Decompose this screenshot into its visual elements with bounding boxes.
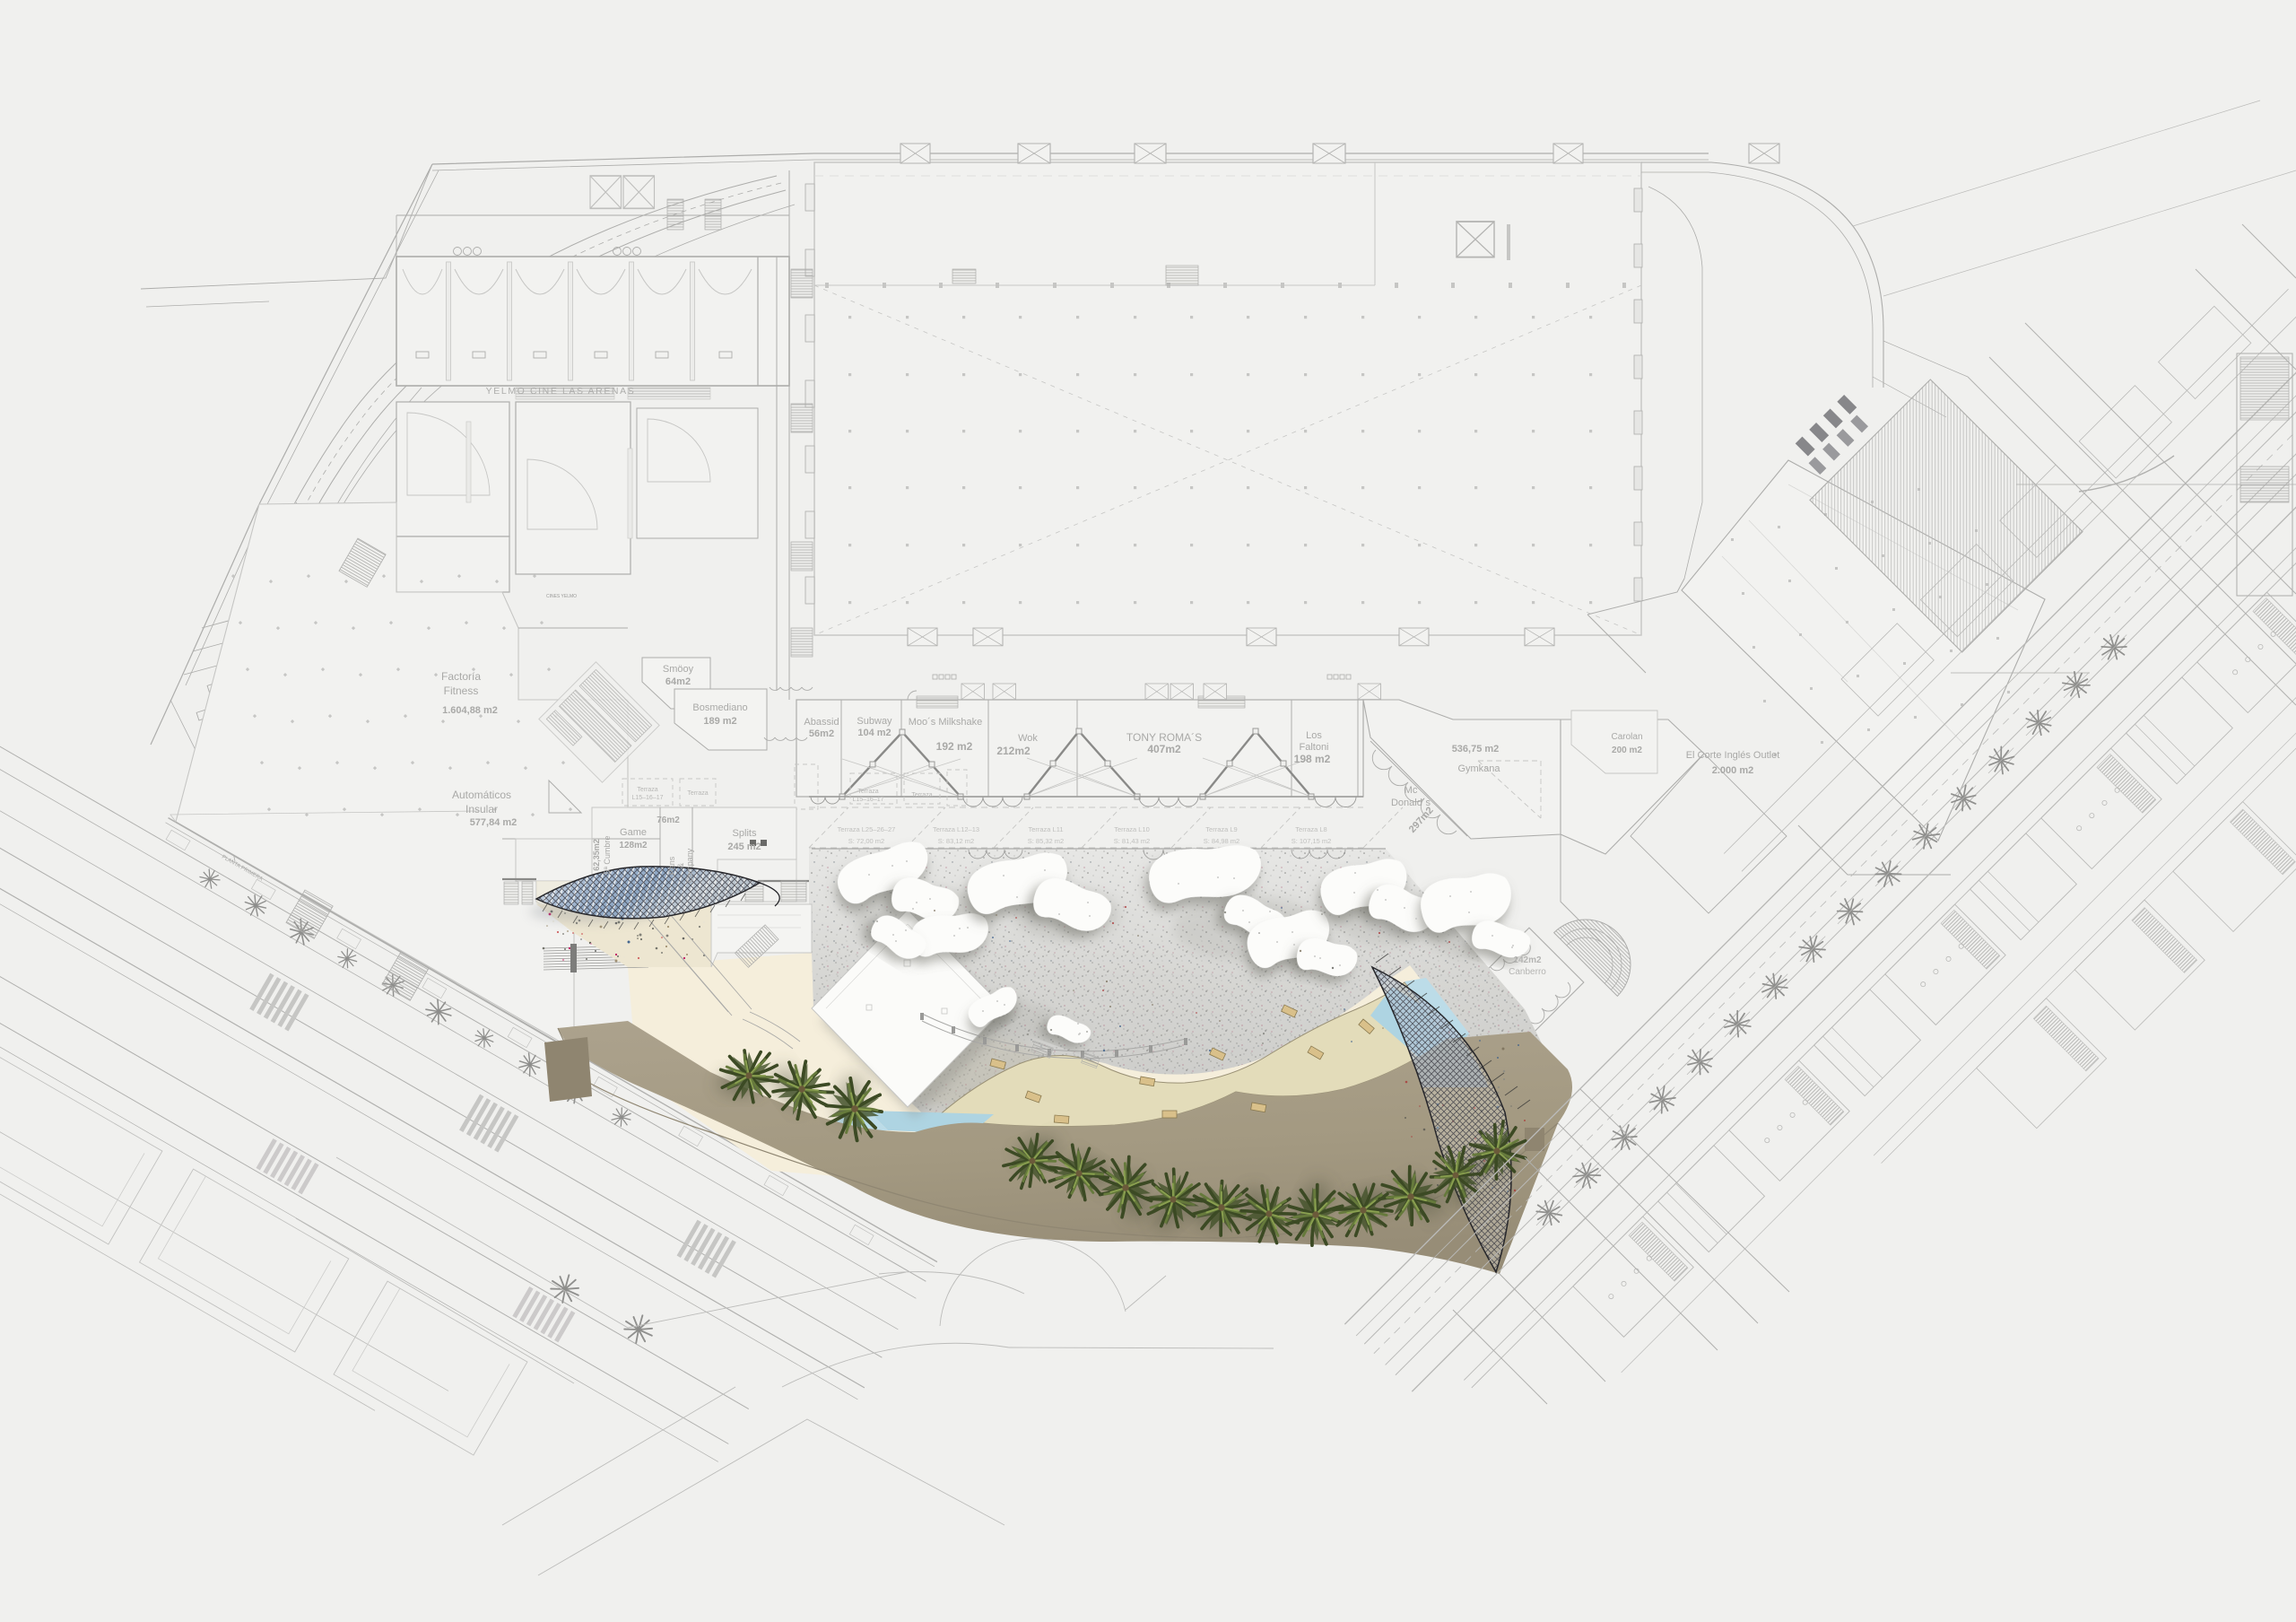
svg-text:Company: Company [685, 848, 694, 883]
svg-text:142m2: 142m2 [1513, 955, 1542, 965]
svg-text:Canberro: Canberro [1509, 967, 1546, 977]
svg-text:Terraza L11: Terraza L11 [1028, 825, 1063, 833]
svg-text:Terraza L12–13: Terraza L12–13 [933, 825, 979, 833]
svg-text:L15–16–17: L15–16–17 [852, 797, 883, 803]
svg-text:245 m2: 245 m2 [727, 842, 761, 852]
svg-text:128m2: 128m2 [619, 841, 648, 850]
svg-text:64m2: 64m2 [665, 676, 691, 687]
svg-text:200 m2: 200 m2 [1612, 746, 1642, 755]
svg-text:Automáticos: Automáticos [452, 789, 511, 801]
svg-text:1.604,88 m2: 1.604,88 m2 [442, 705, 498, 716]
svg-text:Terraza L8: Terraza L8 [1295, 825, 1326, 833]
svg-text:CINES YELMO: CINES YELMO [546, 594, 577, 599]
svg-text:Carolan: Carolan [1611, 732, 1642, 742]
svg-text:198 m2: 198 m2 [1294, 753, 1331, 765]
svg-text:577,84 m2: 577,84 m2 [470, 817, 517, 828]
svg-text:&: & [676, 863, 685, 868]
svg-text:Terraza: Terraza [857, 789, 878, 795]
svg-text:YELMO CINE LAS ARENAS: YELMO CINE LAS ARENAS [486, 386, 636, 397]
svg-text:S: 81,43 m2: S: 81,43 m2 [1114, 837, 1150, 845]
svg-text:Splits: Splits [733, 828, 757, 839]
svg-text:L15–16–17: L15–16–17 [631, 795, 663, 801]
svg-text:Mc: Mc [1405, 785, 1418, 796]
svg-text:Terraza: Terraza [911, 792, 932, 798]
svg-text:56m2: 56m2 [809, 728, 834, 739]
svg-text:76m2: 76m2 [657, 815, 680, 825]
svg-text:Los: Los [1306, 730, 1322, 741]
svg-text:Subway: Subway [857, 716, 892, 727]
svg-text:407m2: 407m2 [1147, 743, 1181, 755]
svg-text:5ª Cumbre: 5ª Cumbre [603, 836, 612, 875]
svg-text:Bosmediano: Bosmediano [692, 702, 747, 713]
svg-text:Terraza L25–26–27: Terraza L25–26–27 [838, 825, 896, 833]
svg-text:S: 83,12 m2: S: 83,12 m2 [938, 837, 974, 845]
svg-text:TONY ROMA´S: TONY ROMA´S [1126, 731, 1202, 744]
svg-text:189 m2: 189 m2 [703, 716, 736, 727]
svg-text:Terraza: Terraza [637, 787, 657, 793]
svg-text:192 m2: 192 m2 [936, 740, 973, 753]
svg-text:Wok: Wok [1018, 733, 1038, 744]
svg-text:S: 72,00 m2: S: 72,00 m2 [848, 837, 884, 845]
svg-text:Insular: Insular [465, 803, 498, 815]
svg-text:Abassid: Abassid [804, 717, 839, 728]
svg-text:Factoría: Factoría [441, 670, 481, 683]
svg-text:536,75 m2: 536,75 m2 [1452, 744, 1500, 754]
svg-text:S: 107,15 m2: S: 107,15 m2 [1291, 837, 1332, 845]
svg-text:Terraza: Terraza [687, 790, 708, 797]
svg-text:104 m2: 104 m2 [857, 728, 891, 738]
svg-text:S: 84,98 m2: S: 84,98 m2 [1204, 837, 1239, 845]
svg-text:Pans: Pans [667, 856, 676, 875]
svg-text:Game: Game [620, 827, 647, 838]
svg-text:Faltoni: Faltoni [1299, 742, 1328, 753]
svg-text:Gymkana: Gymkana [1457, 763, 1500, 774]
svg-text:212m2: 212m2 [996, 745, 1031, 757]
svg-text:S: 85,32 m2: S: 85,32 m2 [1028, 837, 1064, 845]
svg-text:Moo´s Milkshake: Moo´s Milkshake [909, 717, 983, 728]
svg-text:62,35m2: 62,35m2 [592, 839, 601, 871]
svg-text:Terraza L10: Terraza L10 [1114, 825, 1150, 833]
svg-text:Smöoy: Smöoy [663, 664, 694, 675]
svg-text:El Corte Inglés Outlet: El Corte Inglés Outlet [1686, 750, 1780, 761]
svg-text:2.000 m2: 2.000 m2 [1712, 765, 1753, 776]
svg-text:Terraza L9: Terraza L9 [1205, 825, 1237, 833]
svg-text:Fitness: Fitness [444, 685, 479, 697]
